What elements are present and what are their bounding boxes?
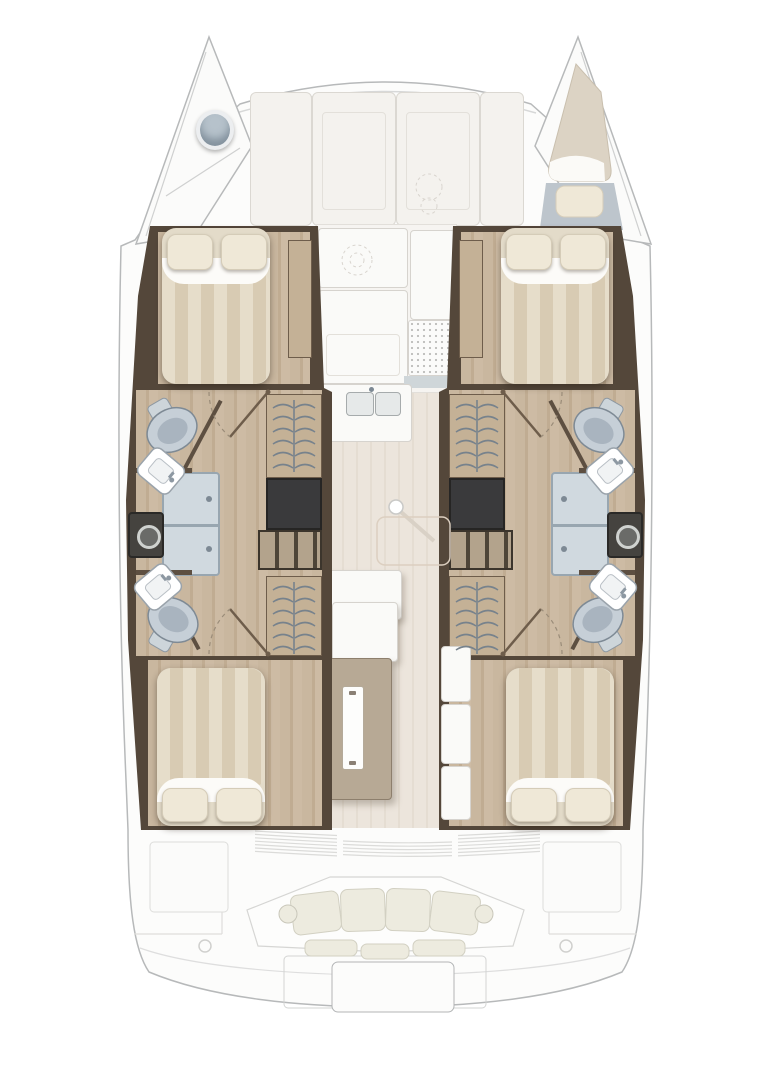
- starboard-washer-door: [616, 525, 640, 549]
- foredeck-panel-inset-1: [322, 112, 386, 210]
- sink-basin-1: [346, 392, 374, 416]
- sliding-door: [342, 686, 364, 770]
- starboard-aft-duvet: [506, 668, 614, 786]
- port-forward-pillow-1: [167, 234, 213, 270]
- deck-ring-port: [199, 940, 211, 952]
- deck-ring-starboard: [560, 940, 572, 952]
- starboard-hanging-locker-aft: [449, 576, 505, 656]
- aft-counter-lower: [332, 602, 398, 662]
- port-aft-bed: [157, 668, 265, 826]
- starboard-forward-wardrobe-strip: [459, 240, 483, 358]
- saloon-shelf-2: [441, 704, 471, 764]
- starboard-shower: [551, 472, 609, 576]
- cockpit-inner-line: [140, 948, 630, 975]
- saloon-shelf-3: [441, 766, 471, 820]
- louver-bands: [255, 831, 540, 856]
- port-shower-handle-1: [206, 496, 212, 502]
- foredeck-panel-1: [250, 92, 312, 226]
- transom-step-band: [284, 956, 486, 1008]
- starboard-forward-pillow-1: [506, 234, 552, 270]
- port-aft-duvet: [157, 668, 265, 786]
- port-shower-door-split: [164, 524, 218, 527]
- port-aft-pillow-2: [216, 788, 262, 822]
- starboard-shower-door-split: [553, 524, 607, 527]
- forepeak-pillow: [556, 186, 603, 217]
- port-forward-duvet: [162, 274, 270, 384]
- port-shower-handle-2: [206, 546, 212, 552]
- port-aft-pillow-1: [162, 788, 208, 822]
- port-stair-void: [266, 478, 322, 530]
- port-hanging-locker-aft: [266, 576, 322, 656]
- galley-faucet: [369, 387, 374, 392]
- starboard-forward-bed: [501, 228, 609, 384]
- starboard-shower-handle-2: [561, 546, 567, 552]
- starboard-aft-pillow-2: [565, 788, 611, 822]
- foredeck-panel-4: [480, 92, 524, 226]
- starboard-hanging-locker-forward: [449, 394, 505, 478]
- starboard-bath-wall-fwd: [579, 468, 635, 473]
- starboard-stair-void: [449, 478, 505, 530]
- bench-frame: [247, 877, 524, 952]
- port-shower: [162, 472, 220, 576]
- galley-cabinet-forward: [318, 228, 408, 288]
- galley-counter-inset: [326, 334, 400, 376]
- port-stairs: [258, 530, 322, 570]
- port-forward-wardrobe-strip: [288, 240, 312, 358]
- bow-starboard: [535, 37, 651, 244]
- starboard-washer: [607, 512, 643, 558]
- bench-armrest-port: [279, 905, 297, 923]
- sink-basin-2: [375, 392, 401, 416]
- forepeak-berth-cushion: [549, 64, 611, 181]
- galley-tall-cabinet: [410, 230, 456, 320]
- bow-deck-hatch: [196, 110, 234, 150]
- port-bath-wall-aft: [136, 570, 192, 575]
- port-forward-bed: [162, 228, 270, 384]
- starboard-bath-wall-aft: [579, 570, 635, 575]
- starboard-forward-pillow-2: [560, 234, 606, 270]
- sliding-door-handle-bottom: [349, 761, 356, 765]
- starboard-forward-duvet: [501, 274, 609, 384]
- port-washer-door: [137, 525, 161, 549]
- starboard-stairs: [449, 530, 513, 570]
- catamaran-floor-plan: [0, 0, 771, 1080]
- bench-armrest-starboard: [475, 905, 493, 923]
- forepeak-floor: [540, 183, 623, 230]
- foredeck-panel-inset-2: [406, 112, 470, 210]
- bench-seat-cushions: [305, 940, 465, 959]
- port-bath-wall-fwd: [136, 468, 192, 473]
- port-forward-pillow-2: [221, 234, 267, 270]
- port-hanging-locker-forward: [266, 394, 322, 478]
- port-washer: [128, 512, 164, 558]
- starboard-shower-handle-1: [561, 496, 567, 502]
- sliding-door-handle-top: [349, 691, 356, 695]
- cockpit-side-lines: [134, 866, 637, 934]
- bow-port: [136, 37, 252, 244]
- bench-back-cushions: [290, 888, 482, 936]
- saloon-shelf-1: [441, 646, 471, 702]
- bow-starboard-locker-line: [581, 52, 641, 236]
- starboard-aft-pillow-1: [511, 788, 557, 822]
- starboard-aft-bed: [506, 668, 614, 826]
- cockpit-locker-port: [150, 842, 228, 912]
- swim-platform: [332, 962, 454, 1012]
- forepeak-berth-sheet: [549, 156, 605, 181]
- cockpit-locker-starboard: [543, 842, 621, 912]
